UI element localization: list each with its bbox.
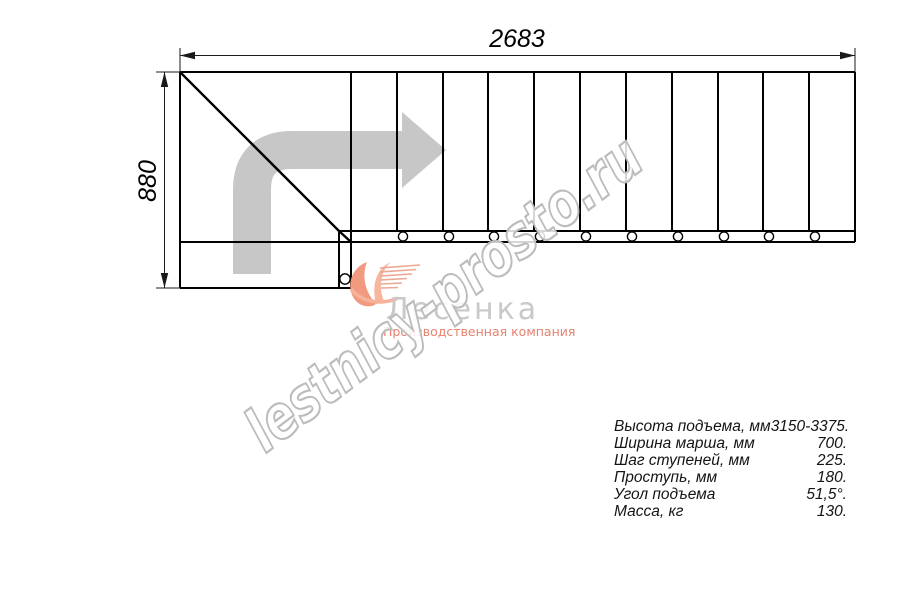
- spec-label: Ширина марша, мм: [614, 436, 755, 453]
- tread-lines: [397, 72, 809, 231]
- spec-label: Высота подъема, мм: [614, 419, 771, 436]
- spec-label: Угол подъема: [614, 487, 715, 504]
- specs-table: Высота подъема, мм 3150-3375. Ширина мар…: [614, 419, 847, 520]
- stair-outline: [180, 72, 855, 288]
- spec-value: 51,5°.: [806, 487, 847, 504]
- spec-label: Проступь, мм: [614, 470, 717, 487]
- spec-value: 180.: [817, 470, 847, 487]
- dimension-width-label: 2683: [488, 25, 545, 53]
- spec-value: 225.: [817, 453, 847, 470]
- spec-value: 700.: [817, 436, 847, 453]
- spec-row: Высота подъема, мм 3150-3375.: [614, 419, 847, 436]
- spec-row: Угол подъема 51,5°.: [614, 487, 847, 504]
- stair-plan-page: 2683 880 Лесенка Производственная компан…: [0, 0, 900, 600]
- spec-row: Шаг ступеней, мм 225.: [614, 453, 847, 470]
- spec-value: 130.: [817, 504, 847, 521]
- brand-tagline: Производственная компания: [383, 325, 563, 339]
- brand-name: Лесенка: [386, 294, 556, 326]
- spec-row: Масса, кг 130.: [614, 504, 847, 521]
- spec-label: Масса, кг: [614, 504, 683, 521]
- spec-row: Проступь, мм 180.: [614, 470, 847, 487]
- dimension-height-label: 880: [134, 160, 162, 202]
- spec-row: Ширина марша, мм 700.: [614, 436, 847, 453]
- spec-label: Шаг ступеней, мм: [614, 453, 750, 470]
- spec-value: 3150-3375.: [771, 419, 849, 436]
